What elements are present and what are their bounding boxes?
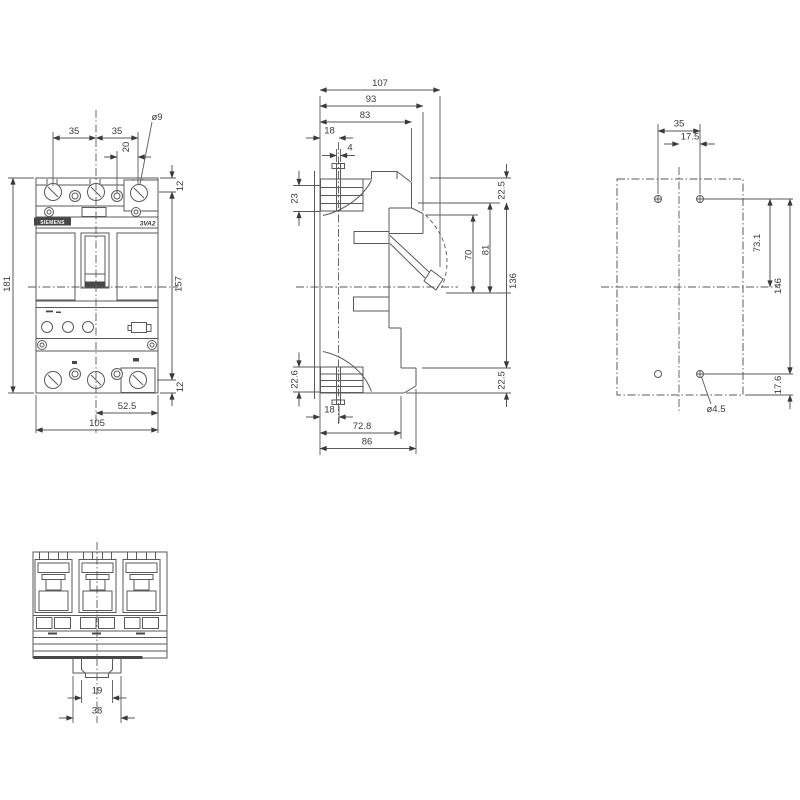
dim-side-depth-86: 86 — [362, 437, 373, 448]
dim-front-top-hole-offset: 12 — [175, 181, 186, 192]
dim-front-half-width: 52.5 — [118, 401, 137, 412]
side-dimensions: 107 93 83 18 4 23 22.6 22.5 81 70 136 — [290, 78, 520, 454]
dim-side-handle-depth-81: 81 — [481, 245, 492, 256]
side-view: 107 93 83 18 4 23 22.6 22.5 81 70 136 — [290, 78, 520, 455]
rear-drilling-view: 35 17.5 73.1 146 17.6 ø4.5 — [601, 119, 793, 416]
dim-front-aux-offset: 20 — [121, 142, 132, 153]
toggle-lever — [390, 236, 429, 279]
dim-rear-hole-pitch: 35 — [674, 119, 685, 130]
dim-side-depth-83: 83 — [360, 110, 371, 121]
dim-side-screw-offset-bottom: 18 — [324, 405, 335, 416]
dim-side-total-depth: 107 — [372, 78, 388, 89]
dim-side-screw-offset-top: 18 — [324, 126, 335, 137]
dim-rear-hole-to-center: 73.1 — [752, 234, 763, 253]
dim-side-handle-depth-70: 70 — [464, 250, 475, 261]
dim-top-din-tab-width: 38 — [92, 706, 103, 717]
dim-front-inner-height: 157 — [174, 276, 185, 292]
dimension-drawing: SIEMENS 3VA2 — [0, 0, 800, 800]
top-view: 19 38 — [33, 542, 167, 723]
dim-side-mid-height: 136 — [508, 273, 519, 289]
top-body — [33, 552, 167, 658]
side-body-outline — [296, 96, 458, 455]
dim-top-din-slot-width: 19 — [92, 686, 103, 697]
dim-side-depth-72-8: 72.8 — [353, 421, 372, 432]
dim-front-total-width: 105 — [89, 418, 105, 429]
dim-side-screw-slot: 4 — [347, 143, 352, 154]
dim-rear-hole-dia: ø4.5 — [706, 404, 725, 415]
rear-dimensions: 35 17.5 73.1 146 17.6 ø4.5 — [658, 119, 793, 416]
dim-front-pole-pitch-left: 35 — [69, 126, 80, 137]
side-bottom-terminal — [321, 367, 364, 393]
dim-front-pole-pitch-right: 35 — [112, 126, 123, 137]
dim-side-top-margin: 22.5 — [497, 181, 508, 200]
dim-front-total-height: 181 — [2, 276, 13, 292]
model-label: 3VA2 — [140, 221, 156, 228]
dim-rear-hole-to-edge: 17.6 — [773, 376, 784, 395]
front-view: SIEMENS 3VA2 — [2, 110, 186, 433]
dim-front-bottom-hole-offset: 12 — [175, 382, 186, 393]
dim-side-terminal-height-top: 23 — [290, 193, 301, 204]
brand-label: SIEMENS — [40, 220, 65, 226]
dim-front-terminal-hole-dia: ø9 — [151, 112, 162, 123]
dim-side-depth-93: 93 — [366, 94, 377, 105]
dim-side-bottom-margin: 22.5 — [497, 371, 508, 390]
dim-side-terminal-height-bottom: 22.6 — [290, 370, 301, 389]
dim-rear-hole-pitch-vertical: 146 — [773, 278, 784, 294]
dim-rear-hole-half-pitch: 17.5 — [681, 132, 700, 143]
